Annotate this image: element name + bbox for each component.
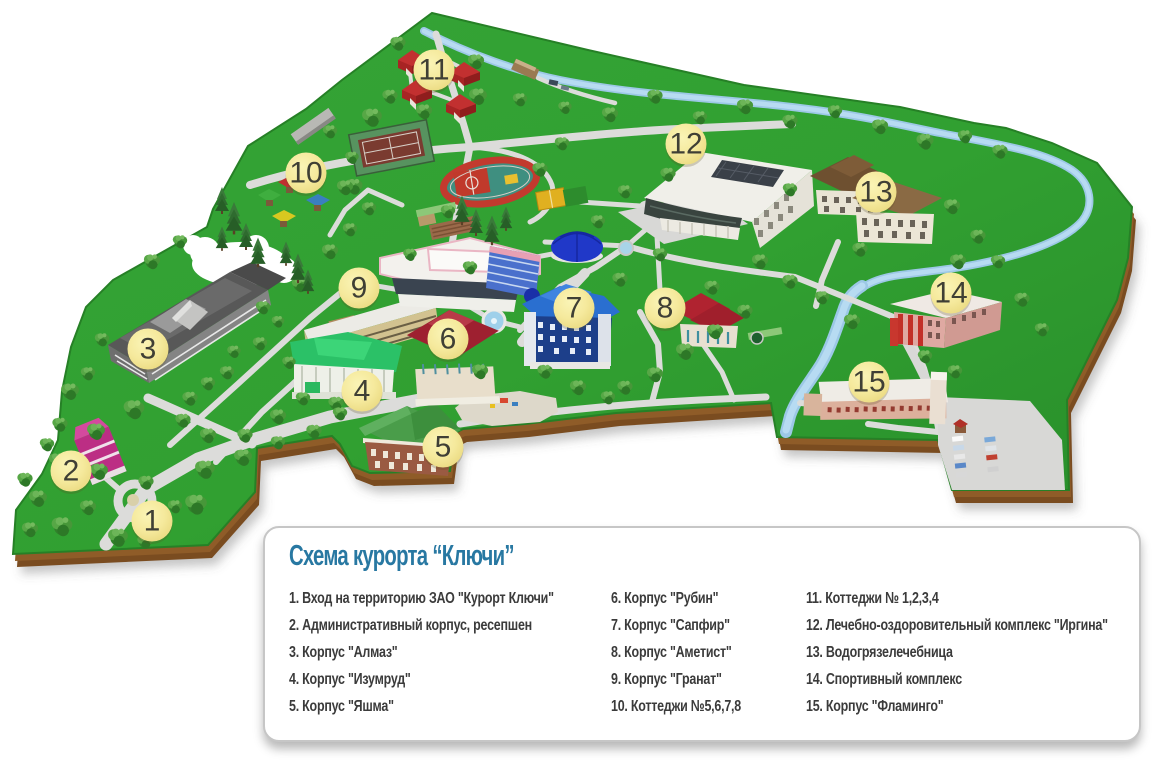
svg-text:3: 3 — [140, 333, 157, 366]
svg-text:2: 2 — [63, 455, 80, 488]
svg-text:10: 10 — [289, 157, 322, 190]
svg-text:4: 4 — [354, 375, 371, 408]
svg-text:11: 11 — [418, 54, 449, 87]
svg-text:6: 6 — [440, 323, 457, 356]
svg-text:13: 13 — [859, 176, 892, 209]
svg-text:15: 15 — [852, 366, 885, 399]
svg-text:14: 14 — [934, 277, 967, 310]
svg-text:7: 7 — [566, 292, 583, 325]
svg-text:12: 12 — [669, 128, 702, 161]
svg-text:8: 8 — [657, 292, 674, 325]
svg-text:9: 9 — [351, 272, 368, 305]
svg-text:1: 1 — [144, 505, 161, 538]
svg-text:5: 5 — [435, 431, 452, 464]
